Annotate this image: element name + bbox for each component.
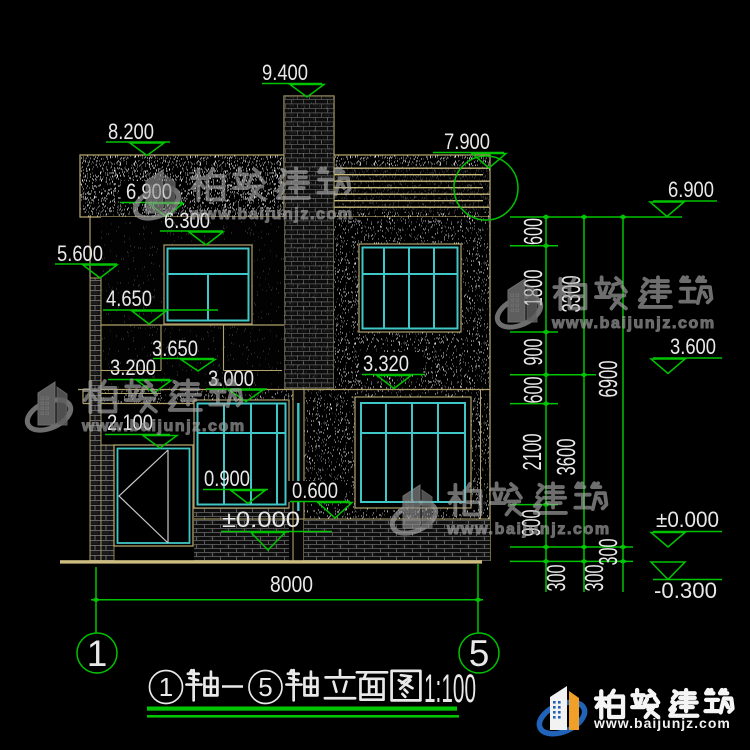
svg-text:300: 300 <box>579 565 609 592</box>
svg-text:3600: 3600 <box>551 439 581 476</box>
svg-text:4.650: 4.650 <box>106 286 152 311</box>
svg-text:5: 5 <box>258 672 272 702</box>
svg-text:1: 1 <box>159 672 173 702</box>
svg-text:±0.000: ±0.000 <box>222 507 300 532</box>
svg-text:8.200: 8.200 <box>108 119 154 144</box>
svg-text:3.200: 3.200 <box>110 355 156 380</box>
svg-text:±0.000: ±0.000 <box>656 507 719 532</box>
svg-text:7.900: 7.900 <box>444 129 490 154</box>
svg-text:6.900: 6.900 <box>668 177 714 202</box>
svg-text:0.900: 0.900 <box>204 466 250 491</box>
svg-text:0.600: 0.600 <box>292 478 338 503</box>
svg-text:600: 600 <box>518 377 548 404</box>
svg-text:300: 300 <box>541 565 571 592</box>
svg-text:www.baijunjz.com: www.baijunjz.com <box>593 715 731 731</box>
svg-text:6900: 6900 <box>593 361 623 398</box>
svg-text:300: 300 <box>593 539 623 566</box>
svg-text:3.000: 3.000 <box>208 366 254 391</box>
svg-text:2100: 2100 <box>517 434 547 471</box>
svg-text:5.600: 5.600 <box>57 241 103 266</box>
svg-text:8000: 8000 <box>270 571 313 597</box>
svg-text:3.650: 3.650 <box>152 336 198 361</box>
svg-text:-0.300: -0.300 <box>654 578 717 603</box>
svg-text:9.400: 9.400 <box>262 60 308 85</box>
svg-text:3.600: 3.600 <box>670 334 716 359</box>
svg-text:600: 600 <box>518 218 548 245</box>
svg-text:900: 900 <box>518 339 548 366</box>
svg-text:1:100: 1:100 <box>424 667 476 711</box>
svg-text:3.320: 3.320 <box>363 351 409 376</box>
svg-text:1: 1 <box>87 633 108 674</box>
